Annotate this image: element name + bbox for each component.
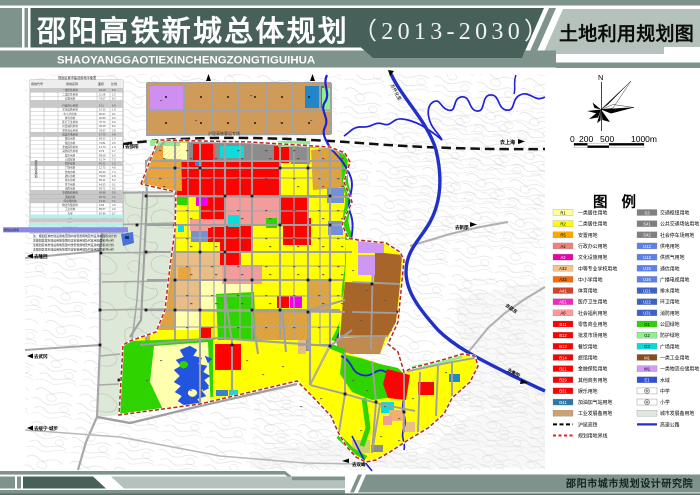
svg-text:防护绿地: 防护绿地 bbox=[660, 332, 680, 339]
svg-text:中小学用地: 中小学用地 bbox=[578, 276, 603, 283]
svg-text:B31: B31 bbox=[559, 389, 567, 394]
svg-text:M1: M1 bbox=[644, 355, 650, 360]
svg-text:（2013-2030）: （2013-2030） bbox=[353, 19, 552, 45]
svg-text:去邵阳: 去邵阳 bbox=[125, 143, 139, 150]
svg-text:10.30: 10.30 bbox=[99, 108, 106, 112]
svg-text:U13: U13 bbox=[643, 255, 651, 260]
svg-text:A6: A6 bbox=[560, 311, 566, 316]
svg-text:B41: B41 bbox=[559, 400, 567, 405]
svg-text:社会福利用地: 社会福利用地 bbox=[62, 124, 78, 128]
svg-text:沪昆高铁: 沪昆高铁 bbox=[578, 421, 598, 428]
svg-text:环卫用地: 环卫用地 bbox=[65, 182, 76, 186]
svg-text:6.0: 6.0 bbox=[112, 88, 116, 92]
svg-text:45.88: 45.88 bbox=[99, 191, 106, 195]
svg-text:9.79: 9.79 bbox=[99, 149, 105, 153]
svg-text:55.21: 55.21 bbox=[99, 178, 106, 182]
svg-text:行政办公用地: 行政办公用地 bbox=[62, 104, 78, 108]
svg-text:道路用地: 道路用地 bbox=[65, 195, 76, 199]
svg-text:广场用地: 广场用地 bbox=[660, 343, 680, 350]
svg-text:43.19: 43.19 bbox=[99, 88, 106, 92]
svg-text:B21: B21 bbox=[559, 366, 567, 371]
svg-text:公园绿地: 公园绿地 bbox=[65, 157, 76, 161]
svg-text:注规划区城市建设用地范围内含安置用地及代征用地面积共计约: 注规划区城市建设用地范围内含安置用地及代征用地面积共计约 bbox=[33, 238, 114, 243]
svg-text:56.07: 56.07 bbox=[99, 112, 106, 116]
svg-text:6.11: 6.11 bbox=[99, 104, 104, 108]
svg-text:通信用地: 通信用地 bbox=[660, 265, 680, 272]
svg-text:9.93: 9.93 bbox=[99, 203, 105, 207]
svg-text:1.9: 1.9 bbox=[112, 137, 116, 141]
svg-text:文化设施用地: 文化设施用地 bbox=[578, 254, 607, 261]
svg-text:U16: U16 bbox=[643, 277, 651, 282]
svg-text:99.71: 99.71 bbox=[99, 187, 106, 191]
svg-text:0: 0 bbox=[570, 134, 575, 144]
svg-text:W1: W1 bbox=[644, 366, 651, 371]
svg-text:S3: S3 bbox=[644, 210, 650, 215]
svg-text:64.53: 64.53 bbox=[99, 182, 106, 186]
svg-text:S41: S41 bbox=[643, 221, 651, 226]
svg-text:500: 500 bbox=[600, 134, 614, 144]
svg-text:5.2: 5.2 bbox=[112, 178, 116, 182]
svg-text:公园绿地: 公园绿地 bbox=[660, 321, 680, 328]
svg-text:R2: R2 bbox=[560, 221, 566, 226]
svg-text:文化设施用地: 文化设施用地 bbox=[62, 108, 78, 112]
svg-text:5.9: 5.9 bbox=[112, 191, 116, 195]
svg-text:通信用地: 通信用地 bbox=[65, 174, 76, 178]
svg-text:去武冈: 去武冈 bbox=[34, 353, 48, 360]
svg-text:6.5: 6.5 bbox=[112, 153, 116, 157]
svg-text:A32: A32 bbox=[559, 266, 567, 271]
svg-text:89.68: 89.68 bbox=[99, 153, 106, 157]
svg-text:注规划区城市建设用地范围内含安置用地及代征用地面积共计约: 注规划区城市建设用地范围内含安置用地及代征用地面积共计约 bbox=[33, 247, 114, 252]
svg-text:面积: 面积 bbox=[98, 81, 104, 86]
svg-text:30.80: 30.80 bbox=[99, 116, 106, 120]
svg-text:交通枢纽用地: 交通枢纽用地 bbox=[660, 210, 689, 217]
svg-text:65.43: 65.43 bbox=[99, 170, 106, 174]
svg-text:其他商务用地: 其他商务用地 bbox=[62, 149, 78, 153]
svg-text:2.8: 2.8 bbox=[112, 128, 116, 132]
svg-text:用地代号: 用地代号 bbox=[31, 81, 43, 86]
svg-text:4.9: 4.9 bbox=[112, 203, 116, 207]
svg-text:9.0: 9.0 bbox=[112, 116, 116, 120]
svg-text:注规划区城市建设用地范围内含安置用地及代征用地面积共计约: 注规划区城市建设用地范围内含安置用地及代征用地面积共计约 bbox=[33, 242, 114, 247]
svg-text:供燃气用地: 供燃气用地 bbox=[660, 254, 685, 261]
svg-text:供电用地: 供电用地 bbox=[660, 243, 680, 250]
svg-text:去新邵: 去新邵 bbox=[455, 224, 469, 231]
svg-text:图例: 图例 bbox=[593, 193, 650, 211]
svg-text:注：规划区城市建设用地范围内含安置用地及代征用地面积共计约: 注：规划区城市建设用地范围内含安置用地及代征用地面积共计约 bbox=[33, 233, 117, 238]
svg-text:A1: A1 bbox=[560, 244, 566, 249]
svg-text:一类居住用地: 一类居住用地 bbox=[62, 88, 78, 92]
svg-text:B12: B12 bbox=[559, 333, 567, 338]
svg-text:旅馆用地: 旅馆用地 bbox=[578, 354, 598, 361]
svg-text:1.8: 1.8 bbox=[112, 108, 116, 112]
svg-text:小学: 小学 bbox=[660, 399, 670, 406]
svg-text:1.9: 1.9 bbox=[112, 145, 116, 149]
svg-text:二类居住用地: 二类居住用地 bbox=[578, 221, 607, 228]
svg-text:A51: A51 bbox=[559, 300, 567, 305]
svg-text:防护绿地: 防护绿地 bbox=[65, 162, 76, 166]
svg-text:E1: E1 bbox=[644, 378, 650, 383]
svg-text:39.53: 39.53 bbox=[99, 128, 106, 132]
svg-text:8.2: 8.2 bbox=[112, 124, 116, 128]
svg-text:1.5: 1.5 bbox=[112, 92, 116, 96]
svg-text:89.23: 89.23 bbox=[99, 137, 106, 141]
svg-text:G2: G2 bbox=[644, 333, 650, 338]
svg-text:6.6: 6.6 bbox=[112, 104, 116, 108]
svg-text:U21: U21 bbox=[643, 288, 651, 293]
svg-text:中等专业学校用地: 中等专业学校用地 bbox=[578, 265, 617, 272]
svg-text:中小学用地: 中小学用地 bbox=[64, 112, 77, 116]
svg-text:17.73: 17.73 bbox=[99, 133, 106, 137]
svg-text:停车场用地: 停车场用地 bbox=[64, 199, 77, 203]
svg-text:79.09: 79.09 bbox=[99, 174, 106, 178]
svg-text:餐饮用地: 餐饮用地 bbox=[65, 137, 76, 141]
svg-text:体育用地: 体育用地 bbox=[65, 116, 76, 120]
svg-text:3.7: 3.7 bbox=[112, 149, 116, 153]
svg-text:邵阳市城市规划设计研究院: 邵阳市城市规划设计研究院 bbox=[565, 477, 693, 490]
svg-text:金融保险用地: 金融保险用地 bbox=[62, 145, 78, 149]
svg-text:比例: 比例 bbox=[111, 81, 117, 86]
svg-text:其他商务用地: 其他商务用地 bbox=[578, 377, 607, 384]
svg-text:社会福利用地: 社会福利用地 bbox=[578, 310, 607, 317]
svg-text:7.4: 7.4 bbox=[112, 170, 116, 174]
svg-text:消防用地: 消防用地 bbox=[65, 187, 76, 191]
svg-text:社会停车场用地: 社会停车场用地 bbox=[660, 232, 694, 239]
svg-text:61.74: 61.74 bbox=[99, 157, 106, 161]
svg-text:7.1: 7.1 bbox=[112, 195, 116, 199]
svg-text:U22: U22 bbox=[643, 300, 651, 305]
svg-text:邵阳高铁新城总体规划: 邵阳高铁新城总体规划 bbox=[36, 15, 349, 48]
svg-text:规划区城市建设用地平衡表: 规划区城市建设用地平衡表 bbox=[58, 75, 97, 80]
svg-text:14.70: 14.70 bbox=[99, 145, 106, 149]
svg-text:0.1: 0.1 bbox=[112, 182, 116, 186]
svg-text:去双峰: 去双峰 bbox=[352, 461, 366, 468]
svg-text:S42: S42 bbox=[643, 233, 651, 238]
svg-text:一类物流仓储用地: 一类物流仓储用地 bbox=[660, 366, 699, 373]
svg-text:物流仓储用地: 物流仓储用地 bbox=[62, 203, 78, 207]
svg-text:工业用地: 工业用地 bbox=[65, 207, 76, 211]
svg-text:B13: B13 bbox=[559, 344, 567, 349]
svg-text:安置用地: 安置用地 bbox=[65, 97, 76, 101]
svg-text:去隆回: 去隆回 bbox=[34, 253, 48, 260]
svg-text:高速公路: 高速公路 bbox=[660, 421, 680, 428]
svg-text:200: 200 bbox=[579, 134, 593, 144]
svg-text:SHAOYANGGAOTIEXINCHENGZONGTIGU: SHAOYANGGAOTIEXINCHENGZONGTIGUIHUA bbox=[57, 55, 315, 67]
svg-text:R1: R1 bbox=[560, 210, 566, 215]
svg-text:N: N bbox=[598, 73, 603, 82]
svg-text:行政办公用地: 行政办公用地 bbox=[578, 243, 607, 250]
svg-text:规划用地界线: 规划用地界线 bbox=[578, 433, 607, 440]
svg-text:1.8: 1.8 bbox=[112, 174, 116, 178]
svg-text:7.1: 7.1 bbox=[112, 199, 116, 203]
svg-text:去上海: 去上海 bbox=[500, 139, 515, 146]
svg-text:8.3: 8.3 bbox=[112, 97, 116, 101]
svg-text:城市发展备用地: 城市发展备用地 bbox=[660, 410, 694, 417]
svg-text:供电用地: 供电用地 bbox=[65, 170, 76, 174]
svg-text:二类居住用地: 二类居住用地 bbox=[62, 92, 78, 96]
svg-text:娱乐用地: 娱乐用地 bbox=[65, 153, 76, 157]
svg-text:广播电视用地: 广播电视用地 bbox=[660, 276, 689, 283]
svg-text:76.07: 76.07 bbox=[99, 97, 106, 101]
svg-text:13.34: 13.34 bbox=[99, 199, 106, 203]
svg-text:75.81: 75.81 bbox=[99, 141, 106, 145]
svg-text:7.5: 7.5 bbox=[112, 157, 116, 161]
svg-text:城市建设用地: 城市建设用地 bbox=[34, 159, 38, 179]
svg-text:沪昆高铁客运专线: 沪昆高铁客运专线 bbox=[208, 130, 240, 136]
svg-text:用地名称: 用地名称 bbox=[66, 81, 78, 86]
svg-text:规划总用地: 规划总用地 bbox=[4, 227, 19, 232]
svg-text:G3: G3 bbox=[644, 344, 650, 349]
svg-text:消防用地: 消防用地 bbox=[660, 310, 680, 317]
svg-text:零售商业用地: 零售商业用地 bbox=[578, 321, 607, 328]
svg-text:旅馆用地: 旅馆用地 bbox=[65, 141, 76, 145]
svg-text:A33: A33 bbox=[559, 277, 567, 282]
svg-text:批发市场用地: 批发市场用地 bbox=[62, 133, 78, 137]
svg-text:批发市场用地: 批发市场用地 bbox=[578, 332, 607, 339]
svg-text:1000m: 1000m bbox=[631, 134, 657, 144]
svg-text:餐饮用地: 餐饮用地 bbox=[578, 343, 598, 350]
svg-text:12.73: 12.73 bbox=[99, 166, 106, 170]
svg-text:U31: U31 bbox=[643, 311, 651, 316]
svg-text:水域: 水域 bbox=[660, 377, 670, 384]
svg-text:排水用地: 排水用地 bbox=[65, 178, 76, 182]
svg-text:环卫用地: 环卫用地 bbox=[660, 299, 680, 306]
svg-text:广场用地: 广场用地 bbox=[65, 166, 76, 170]
svg-text:工业发展备用地: 工业发展备用地 bbox=[578, 410, 612, 417]
svg-text:一类居住用地: 一类居住用地 bbox=[578, 210, 607, 217]
svg-text:U12: U12 bbox=[643, 244, 651, 249]
svg-text:娱乐用地: 娱乐用地 bbox=[578, 388, 598, 395]
svg-text:U15: U15 bbox=[643, 266, 651, 271]
svg-text:4.8: 4.8 bbox=[112, 133, 116, 137]
svg-text:A41: A41 bbox=[559, 288, 567, 293]
svg-text:加油加气站用地: 加油加气站用地 bbox=[578, 399, 612, 406]
svg-text:交通枢纽用地: 交通枢纽用地 bbox=[62, 191, 78, 195]
svg-text:65.74: 65.74 bbox=[99, 195, 106, 199]
svg-text:去绥宁·城步: 去绥宁·城步 bbox=[34, 425, 58, 432]
svg-text:89.57: 89.57 bbox=[99, 207, 106, 211]
svg-text:9.1: 9.1 bbox=[112, 112, 116, 116]
svg-text:安置用地: 安置用地 bbox=[578, 232, 598, 239]
svg-text:A2: A2 bbox=[560, 255, 566, 260]
svg-text:中学: 中学 bbox=[660, 388, 670, 395]
svg-text:零售商业用地: 零售商业用地 bbox=[62, 128, 78, 132]
svg-text:一类工业用地: 一类工业用地 bbox=[660, 354, 689, 361]
svg-text:公共交通场站用地: 公共交通场站用地 bbox=[660, 221, 699, 228]
svg-text:2.3: 2.3 bbox=[112, 162, 116, 166]
svg-text:40.31: 40.31 bbox=[99, 162, 106, 166]
svg-text:4.6: 4.6 bbox=[112, 207, 116, 211]
svg-text:G1: G1 bbox=[644, 322, 650, 327]
svg-text:6.0: 6.0 bbox=[112, 120, 116, 124]
svg-text:排水用地: 排水用地 bbox=[660, 288, 680, 295]
svg-text:B11: B11 bbox=[559, 322, 567, 327]
svg-text:R5: R5 bbox=[560, 233, 566, 238]
svg-text:医疗卫生用地: 医疗卫生用地 bbox=[578, 299, 607, 306]
svg-text:11.68: 11.68 bbox=[99, 92, 106, 96]
svg-text:金融保险用地: 金融保险用地 bbox=[578, 366, 607, 373]
svg-text:3.5: 3.5 bbox=[112, 141, 116, 145]
svg-text:医疗卫生用地: 医疗卫生用地 bbox=[62, 120, 78, 124]
svg-text:B14: B14 bbox=[559, 355, 567, 360]
svg-text:土地利用规划图: 土地利用规划图 bbox=[559, 22, 694, 45]
svg-text:75.74: 75.74 bbox=[99, 120, 106, 124]
svg-text:9.5: 9.5 bbox=[112, 187, 116, 191]
svg-text:B29: B29 bbox=[559, 378, 567, 383]
svg-text:体育用地: 体育用地 bbox=[578, 288, 598, 295]
svg-text:4.8: 4.8 bbox=[112, 166, 116, 170]
svg-text:30.05: 30.05 bbox=[99, 124, 106, 128]
